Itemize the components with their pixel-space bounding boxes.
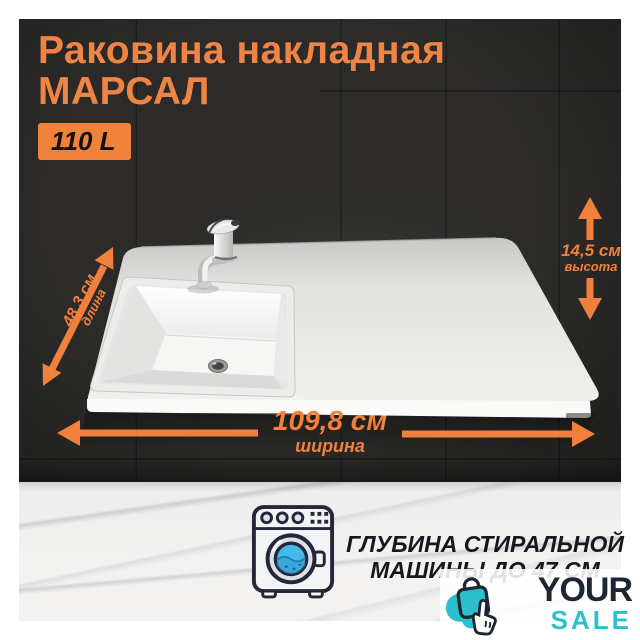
product-title-line2: МАРСАЛ xyxy=(38,71,446,112)
height-dimension-label: 14,5 см высота xyxy=(551,242,631,274)
width-name: ширина xyxy=(230,436,430,456)
brand-name-top: YOUR xyxy=(502,573,632,607)
wall-rail xyxy=(19,458,621,460)
height-value: 14,5 см xyxy=(551,242,631,260)
washing-machine-icon xyxy=(250,503,336,601)
brand-name-bottom: SALE xyxy=(502,607,632,633)
wall-shadow xyxy=(19,460,621,482)
height-name: высота xyxy=(551,260,631,274)
product-title: Раковина накладная МАРСАЛ xyxy=(38,30,446,112)
product-title-line1: Раковина накладная xyxy=(38,30,446,71)
brand-words: YOUR SALE xyxy=(502,573,632,633)
width-dimension-label: 109,8 см ширина xyxy=(230,407,430,456)
volume-badge: 110 L xyxy=(38,123,131,160)
caption-line1: ГЛУБИНА СТИРАЛЬНОЙ xyxy=(335,531,635,557)
brand-logo: YOUR SALE xyxy=(440,569,636,638)
product-card: Раковина накладная МАРСАЛ 110 L 109,8 см… xyxy=(0,0,640,640)
width-value: 109,8 см xyxy=(230,407,430,435)
shopping-bag-click-icon xyxy=(444,572,504,636)
